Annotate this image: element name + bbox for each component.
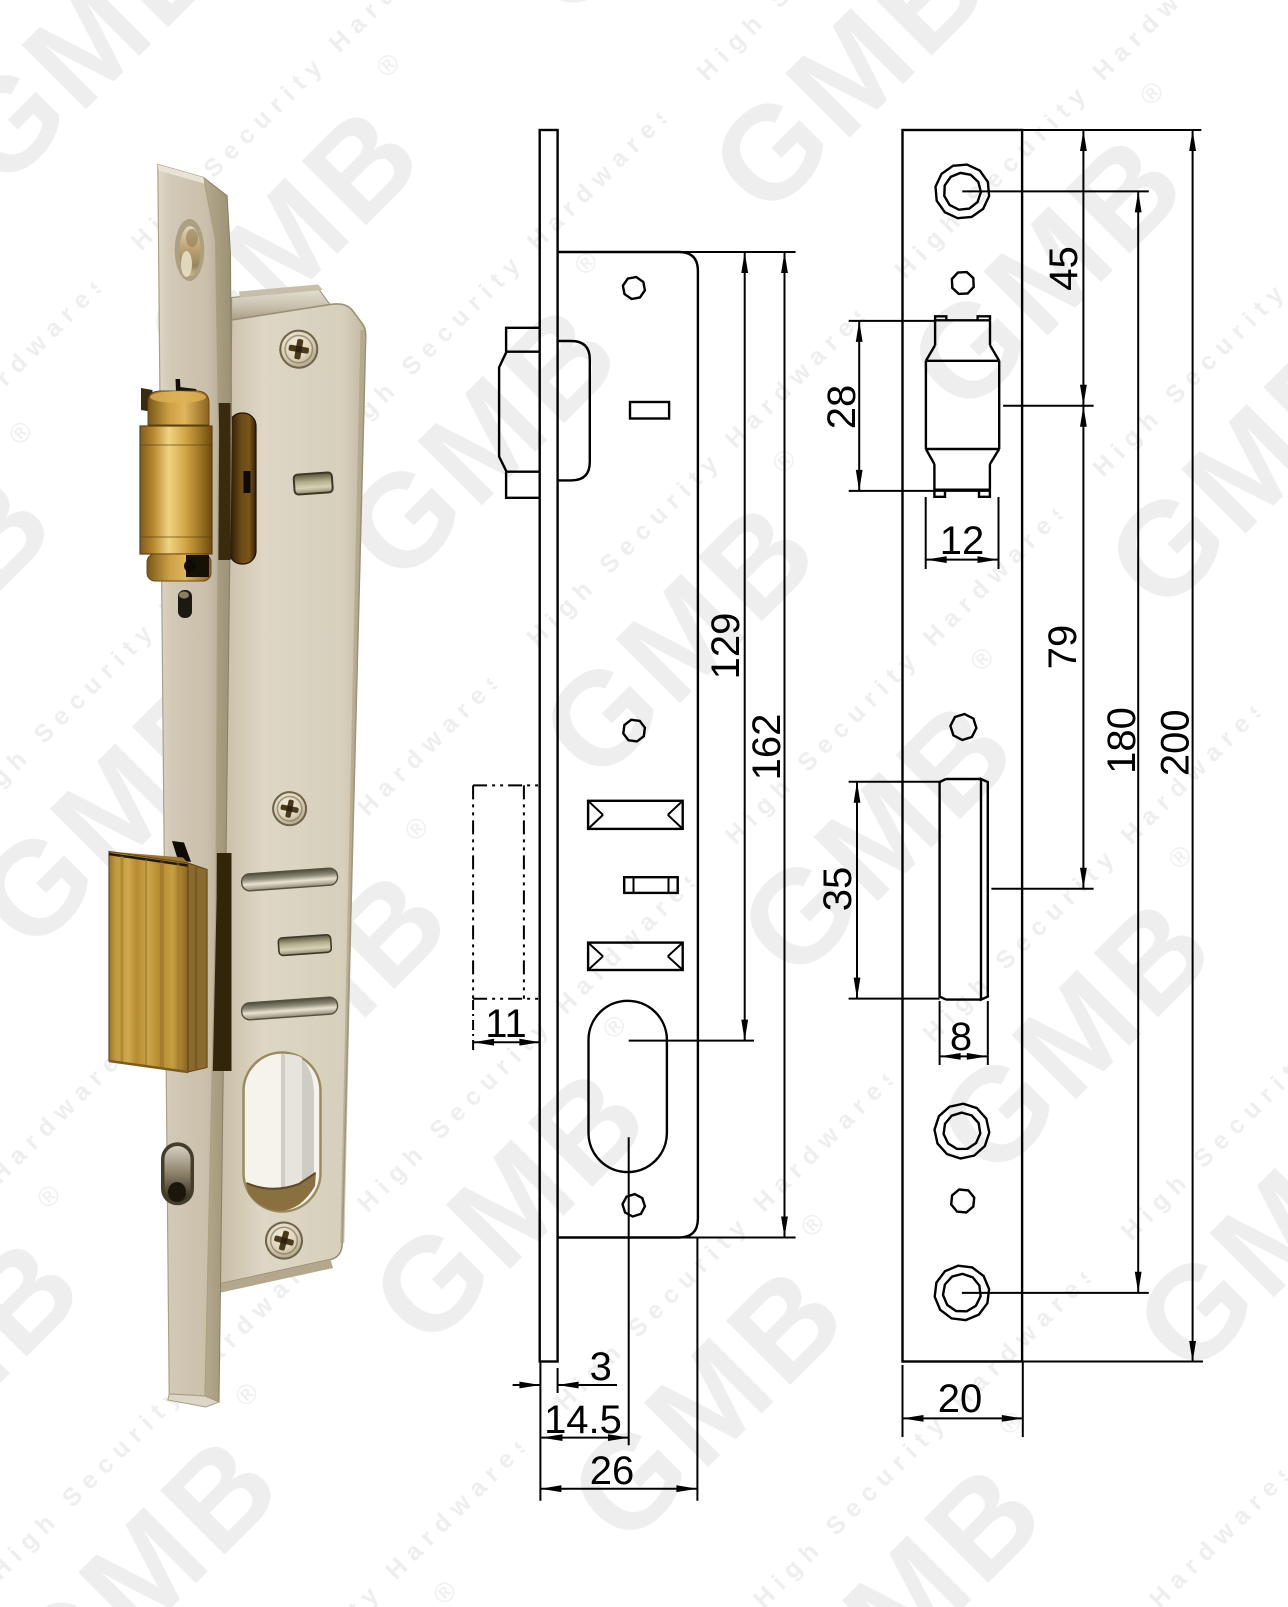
svg-text:12: 12 — [940, 519, 985, 563]
svg-text:200: 200 — [1154, 709, 1198, 776]
svg-text:79: 79 — [1041, 625, 1085, 670]
svg-text:180: 180 — [1100, 707, 1144, 774]
svg-text:129: 129 — [704, 613, 748, 680]
svg-text:26: 26 — [590, 1449, 635, 1493]
svg-text:11: 11 — [485, 1002, 527, 1046]
svg-text:162: 162 — [745, 714, 789, 781]
svg-text:8: 8 — [950, 1015, 972, 1059]
svg-text:14.5: 14.5 — [544, 1398, 622, 1442]
svg-text:3: 3 — [590, 1345, 612, 1389]
svg-text:45: 45 — [1042, 246, 1086, 291]
svg-text:20: 20 — [938, 1377, 983, 1421]
svg-text:28: 28 — [820, 385, 864, 430]
svg-text:35: 35 — [816, 867, 860, 912]
